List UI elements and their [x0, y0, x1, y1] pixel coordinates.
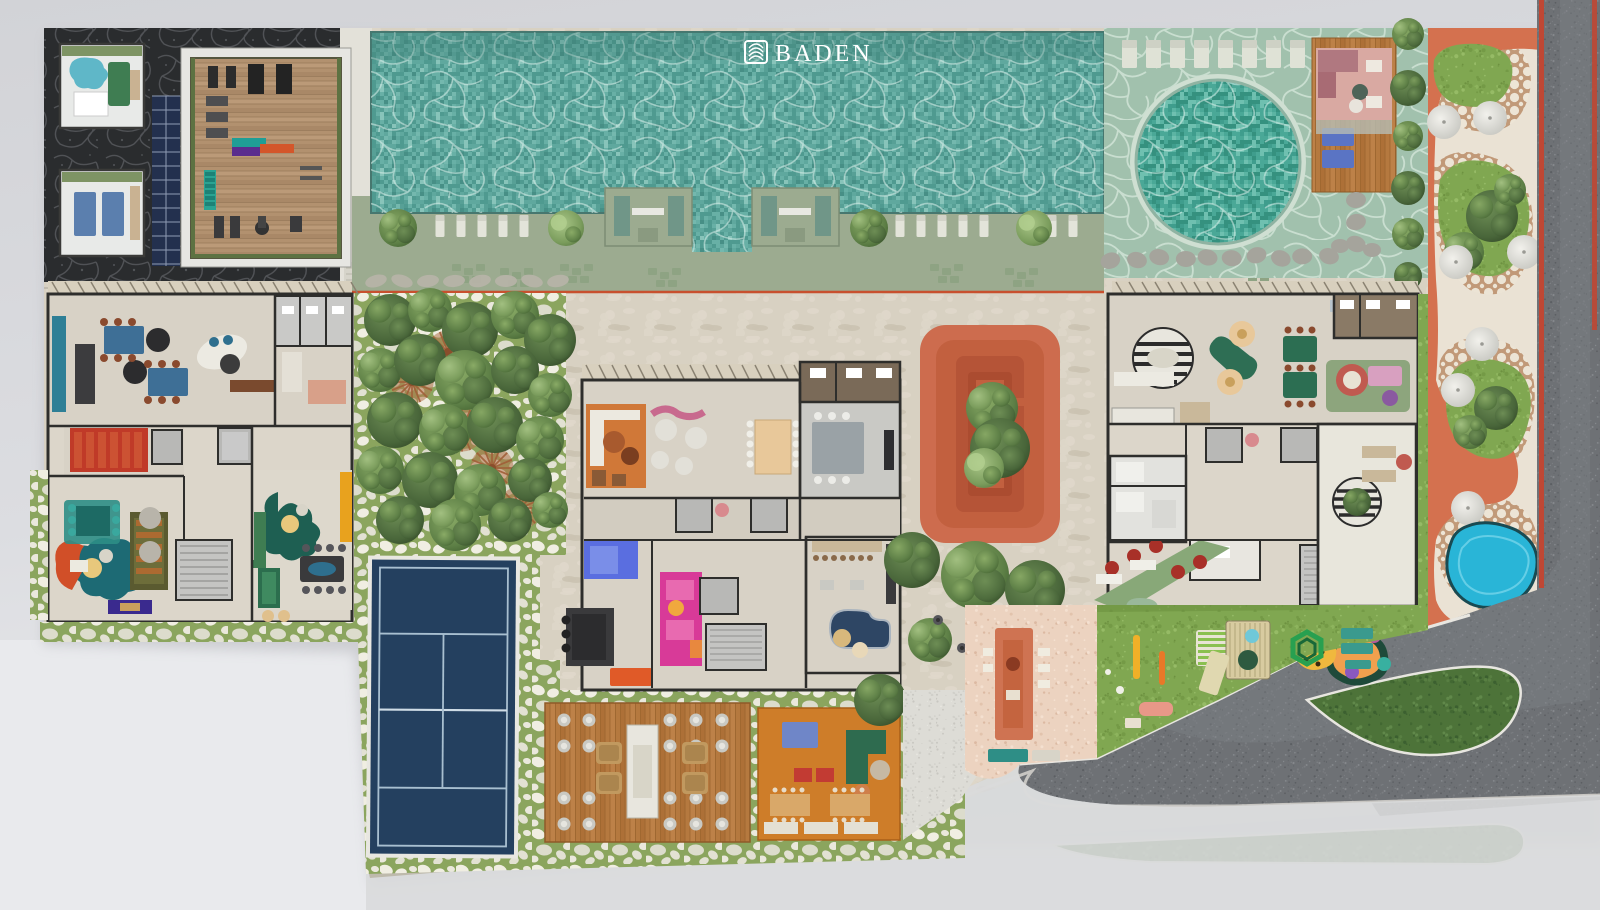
- svg-text:BADEN: BADEN: [775, 41, 873, 67]
